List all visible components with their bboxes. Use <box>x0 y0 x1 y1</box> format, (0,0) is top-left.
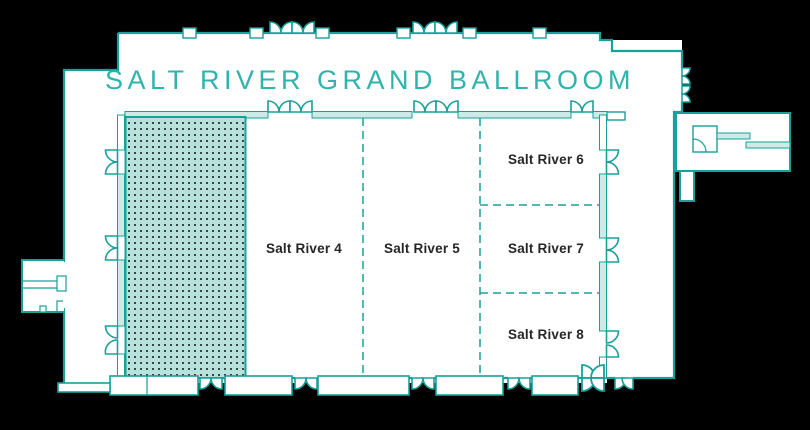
floorplan: SALT RIVER GRAND BALLROOM <box>0 0 810 430</box>
floorplan-canvas: SALT RIVER GRAND BALLROOM <box>0 0 810 430</box>
room-label-salt-river-7: Salt River 7 <box>508 241 584 256</box>
room-selected-salt-river[interactable] <box>126 117 246 378</box>
entrance-door-arcs-top <box>270 22 457 33</box>
northeast-door-arcs <box>682 68 690 102</box>
left-annex <box>22 260 66 312</box>
room-label-salt-river-8: Salt River 8 <box>508 327 584 342</box>
room-label-salt-river-6: Salt River 6 <box>508 152 584 167</box>
right-annex <box>676 113 790 201</box>
south-vestibules <box>58 376 578 395</box>
room-label-salt-river-4: Salt River 4 <box>266 241 342 256</box>
ballroom-title: SALT RIVER GRAND BALLROOM <box>105 65 635 95</box>
annex-counter <box>746 142 790 148</box>
room-label-salt-river-5: Salt River 5 <box>384 241 460 256</box>
annex-counter <box>717 133 750 139</box>
